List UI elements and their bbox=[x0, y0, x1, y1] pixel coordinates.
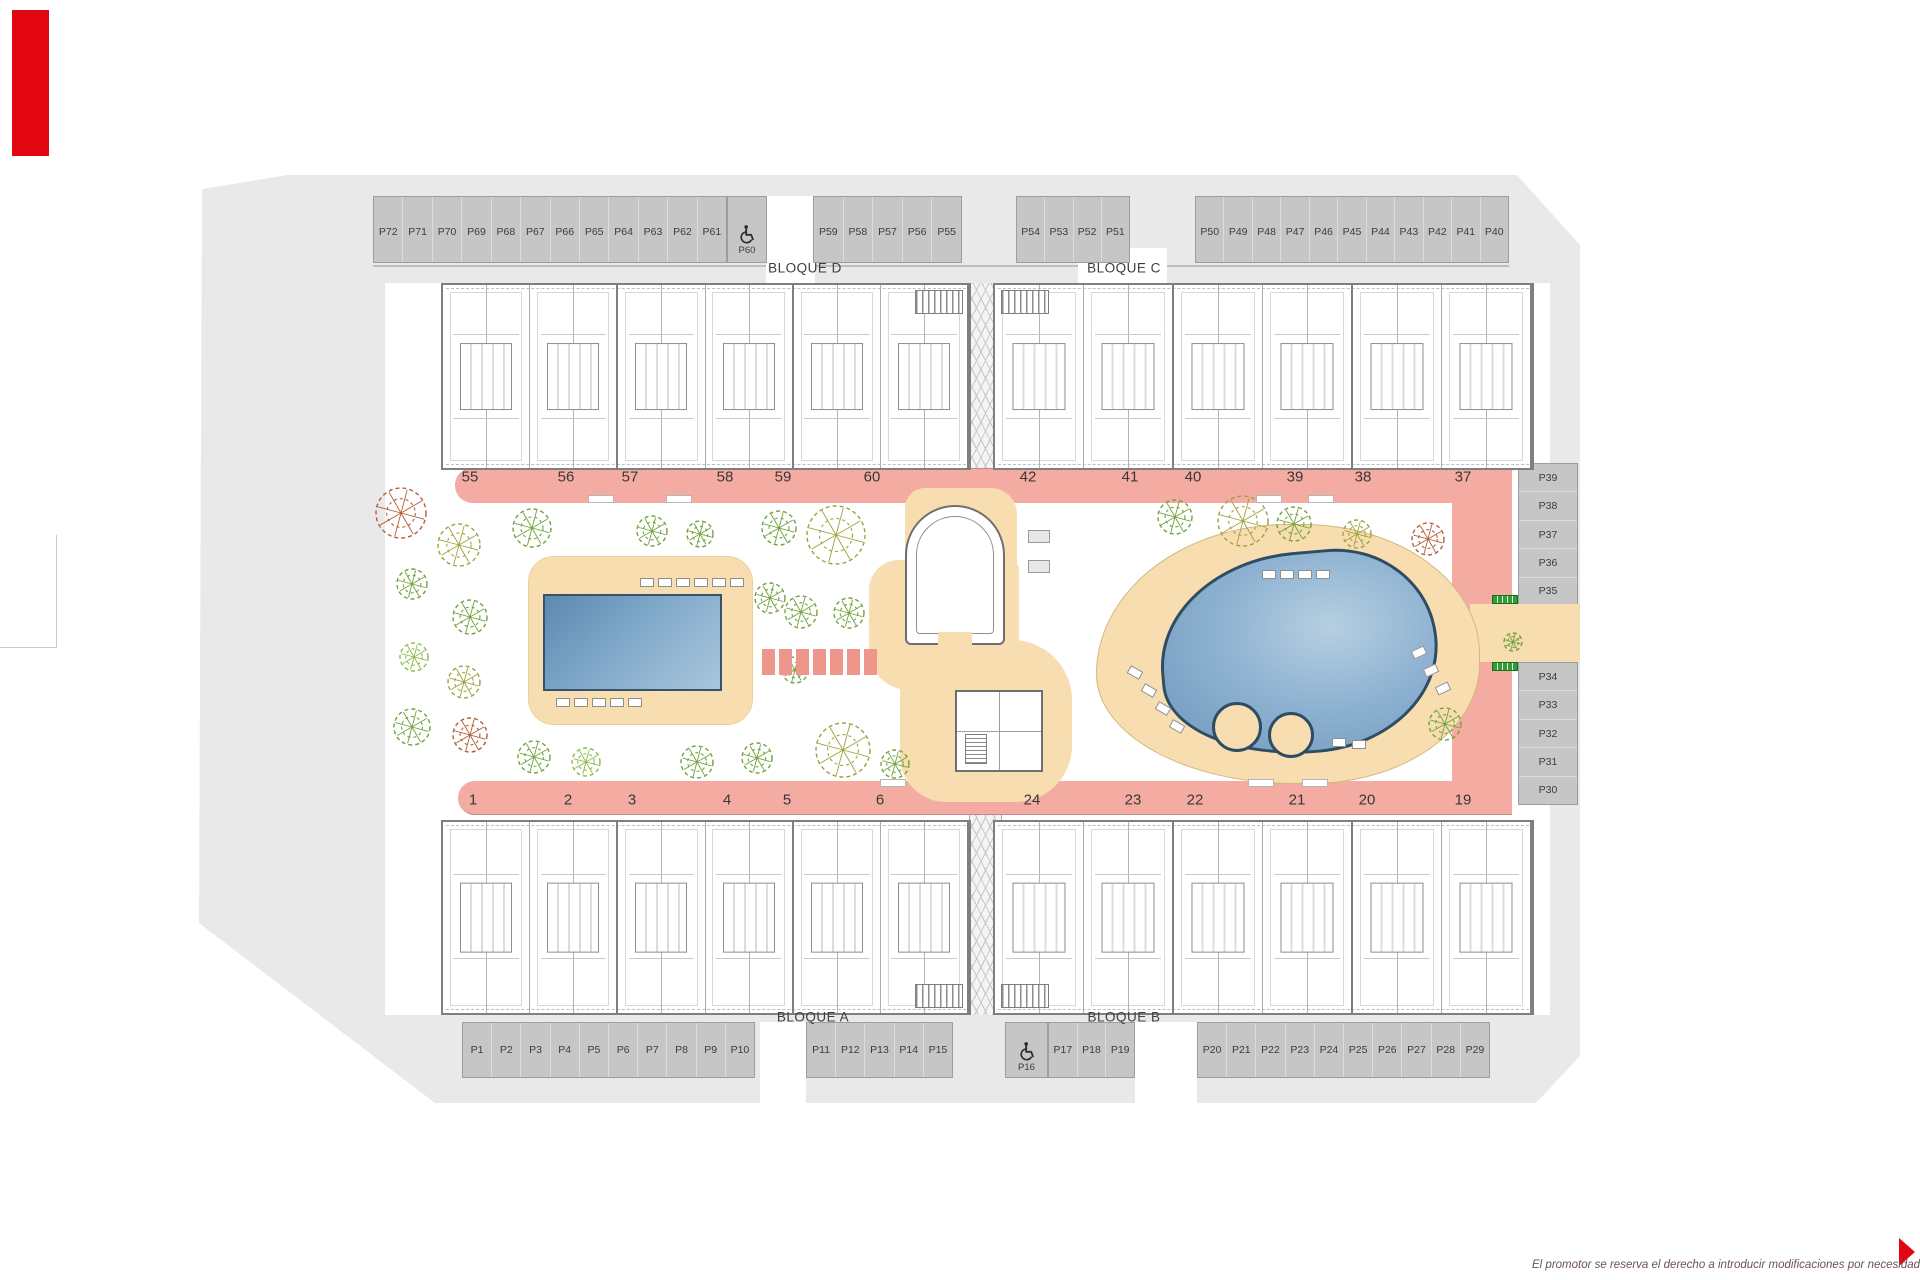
parking-stall-label: P31 bbox=[1539, 756, 1558, 768]
parking-stall: P54 bbox=[1017, 197, 1044, 262]
apartment-unit bbox=[1174, 822, 1263, 1013]
parking-stall: P48 bbox=[1252, 197, 1280, 262]
unit-number-label: 23 bbox=[1125, 792, 1142, 809]
parking-stall: P8 bbox=[666, 1023, 695, 1077]
parking-stall-label: P52 bbox=[1078, 226, 1097, 238]
parking-stall-label: P21 bbox=[1232, 1044, 1251, 1056]
planter-bench bbox=[588, 495, 614, 503]
parking-stall-label: P47 bbox=[1286, 226, 1305, 238]
parking-stall: P27 bbox=[1401, 1023, 1430, 1077]
stepping-stone bbox=[813, 649, 826, 675]
stairs-icon bbox=[1001, 290, 1049, 314]
parking-stall: P62 bbox=[667, 197, 696, 262]
pavilion-building bbox=[955, 690, 1043, 772]
parking-stall: P22 bbox=[1255, 1023, 1284, 1077]
sun-lounger-icon bbox=[1298, 570, 1312, 579]
planter-bench bbox=[1256, 495, 1282, 503]
planter-bench bbox=[880, 779, 906, 787]
parking-stall-label: P55 bbox=[937, 226, 956, 238]
parking-stall-label: P12 bbox=[841, 1044, 860, 1056]
parking-stall-label: P19 bbox=[1111, 1044, 1130, 1056]
unit-number-label: 58 bbox=[717, 469, 734, 486]
parking-stall: P43 bbox=[1394, 197, 1422, 262]
parking-group-bottom-right: P20P21P22P23P24P25P26P27P28P29 bbox=[1197, 1022, 1490, 1078]
parking-stall: P67 bbox=[520, 197, 549, 262]
parking-stall: P69 bbox=[461, 197, 490, 262]
parking-stall-label: P17 bbox=[1053, 1044, 1072, 1056]
parking-stall-label: P11 bbox=[812, 1044, 830, 1056]
parking-stall-label: P46 bbox=[1314, 226, 1333, 238]
parking-group-bottom-left: P1P2P3P4P5P6P7P8P9P10 bbox=[462, 1022, 755, 1078]
parking-stall-label: P1 bbox=[471, 1044, 484, 1056]
parking-stall-accessible: P16 bbox=[1005, 1022, 1048, 1078]
parking-stall-label: P53 bbox=[1050, 226, 1069, 238]
exit-sign bbox=[1492, 662, 1518, 671]
parking-stall-label: P15 bbox=[929, 1044, 948, 1056]
parking-stall-label: P34 bbox=[1539, 671, 1558, 683]
unit-number-label: 5 bbox=[783, 792, 791, 809]
parking-stall-label: P71 bbox=[408, 226, 427, 238]
parking-stall: P71 bbox=[402, 197, 431, 262]
parking-stall-label: P64 bbox=[614, 226, 633, 238]
sun-lounger-icon bbox=[574, 698, 588, 707]
spa-bench bbox=[1028, 560, 1050, 573]
parking-stall: P7 bbox=[637, 1023, 666, 1077]
unit-number-label: 20 bbox=[1359, 792, 1376, 809]
parking-stall-label: P13 bbox=[870, 1044, 889, 1056]
parking-stall-label: P60 bbox=[739, 245, 756, 256]
curb-line bbox=[373, 265, 1509, 267]
parking-stall-label: P24 bbox=[1320, 1044, 1339, 1056]
parking-stall: P11 bbox=[807, 1023, 835, 1077]
parking-stall: P14 bbox=[894, 1023, 923, 1077]
parking-stall: P6 bbox=[608, 1023, 637, 1077]
parking-stall-label: P9 bbox=[704, 1044, 717, 1056]
parking-stall-label: P56 bbox=[908, 226, 927, 238]
parking-stall-label: P51 bbox=[1106, 226, 1125, 238]
parking-stall: P28 bbox=[1431, 1023, 1460, 1077]
parking-group-top-mid-left: P59P58P57P56P55 bbox=[813, 196, 962, 263]
parking-stall-label: P48 bbox=[1257, 226, 1276, 238]
parking-stall: P68 bbox=[491, 197, 520, 262]
parking-stall: P44 bbox=[1366, 197, 1394, 262]
parking-stall-label: P61 bbox=[703, 226, 722, 238]
apartment-unit bbox=[618, 822, 705, 1013]
parking-stall-label: P38 bbox=[1539, 500, 1558, 512]
stepping-stone bbox=[847, 649, 860, 675]
parking-stall-label: P70 bbox=[438, 226, 457, 238]
parking-stall: P32 bbox=[1519, 719, 1577, 747]
stairs-icon bbox=[965, 734, 987, 764]
parking-stall-label: P43 bbox=[1400, 226, 1419, 238]
apartment-unit bbox=[1353, 822, 1442, 1013]
parking-group-top-right: P50P49P48P47P46P45P44P43P42P41P40 bbox=[1195, 196, 1509, 263]
sun-lounger-icon bbox=[694, 578, 708, 587]
parking-stall-label: P2 bbox=[500, 1044, 513, 1056]
unit-number-label: 2 bbox=[564, 792, 572, 809]
parking-stall-label: P4 bbox=[558, 1044, 571, 1056]
parking-stall-label: P10 bbox=[731, 1044, 750, 1056]
clubhouse-building bbox=[905, 505, 1005, 645]
parking-stall-label: P16 bbox=[1018, 1062, 1035, 1073]
apartment-unit bbox=[794, 285, 881, 468]
parking-stall: P18 bbox=[1077, 1023, 1106, 1077]
site-plan-page: P72P71P70P69P68P67P66P65P64P63P62P61 P60… bbox=[0, 0, 1920, 1280]
parking-stall-label: P32 bbox=[1539, 728, 1558, 740]
parking-stall: P38 bbox=[1519, 491, 1577, 519]
parking-stall-label: P39 bbox=[1539, 472, 1558, 484]
parking-stall: P24 bbox=[1314, 1023, 1343, 1077]
parking-stall-label: P68 bbox=[497, 226, 516, 238]
building-bloque-d bbox=[441, 283, 971, 470]
unit-number-label: 3 bbox=[628, 792, 636, 809]
block-label-a: BLOQUE A bbox=[777, 1010, 849, 1025]
parking-stall: P29 bbox=[1460, 1023, 1489, 1077]
sun-lounger-icon bbox=[676, 578, 690, 587]
apartment-unit bbox=[1442, 285, 1532, 468]
unit-number-label: 60 bbox=[864, 469, 881, 486]
parking-stall-label: P40 bbox=[1485, 226, 1504, 238]
building-bloque-a bbox=[441, 820, 971, 1015]
parking-stall-label: P41 bbox=[1456, 226, 1475, 238]
stepping-stone bbox=[796, 649, 809, 675]
parking-stall: P34 bbox=[1519, 663, 1577, 690]
parking-stall: P13 bbox=[864, 1023, 893, 1077]
apartment-unit bbox=[794, 822, 881, 1013]
apartment-unit bbox=[1084, 285, 1174, 468]
parking-stall: P58 bbox=[843, 197, 873, 262]
parking-stall-label: P59 bbox=[819, 226, 838, 238]
unit-number-label: 55 bbox=[462, 469, 479, 486]
apartment-unit bbox=[706, 822, 794, 1013]
parking-group-right-lower: P34P33P32P31P30 bbox=[1518, 662, 1578, 805]
parking-stall: P65 bbox=[579, 197, 608, 262]
block-label-c: BLOQUE C bbox=[1087, 261, 1161, 276]
parking-stall-label: P6 bbox=[617, 1044, 630, 1056]
parking-stall: P1 bbox=[463, 1023, 491, 1077]
parking-stall: P5 bbox=[579, 1023, 608, 1077]
parking-stall: P21 bbox=[1226, 1023, 1255, 1077]
apartment-unit bbox=[1263, 822, 1353, 1013]
parking-stall: P10 bbox=[725, 1023, 754, 1077]
building-bloque-b bbox=[993, 820, 1534, 1015]
parking-stall: P41 bbox=[1451, 197, 1479, 262]
stepping-stone bbox=[864, 649, 877, 675]
sun-lounger-icon bbox=[628, 698, 642, 707]
parking-stall: P42 bbox=[1423, 197, 1451, 262]
unit-number-label: 42 bbox=[1020, 469, 1037, 486]
parking-stall-label: P62 bbox=[673, 226, 692, 238]
parking-group-bottom-mid2: P17P18P19 bbox=[1048, 1022, 1135, 1078]
parking-stall: P59 bbox=[814, 197, 843, 262]
parking-stall: P47 bbox=[1280, 197, 1308, 262]
parking-stall: P66 bbox=[550, 197, 579, 262]
parking-stall: P61 bbox=[697, 197, 726, 262]
lagoon-cove bbox=[1268, 712, 1314, 758]
parking-stall-label: P65 bbox=[585, 226, 604, 238]
parking-group-bottom-mid: P11P12P13P14P15 bbox=[806, 1022, 953, 1078]
parking-stall-label: P26 bbox=[1378, 1044, 1397, 1056]
unit-number-label: 38 bbox=[1355, 469, 1372, 486]
entrance-notch bbox=[1135, 1022, 1197, 1103]
parking-stall: P33 bbox=[1519, 690, 1577, 718]
unit-number-label: 22 bbox=[1187, 792, 1204, 809]
building-bloque-c bbox=[993, 283, 1534, 470]
parking-stall: P37 bbox=[1519, 520, 1577, 548]
sun-lounger-icon bbox=[1352, 740, 1366, 749]
parking-stall-label: P54 bbox=[1021, 226, 1040, 238]
apartment-unit bbox=[1442, 822, 1532, 1013]
parking-stall-label: P45 bbox=[1343, 226, 1362, 238]
unit-number-label: 24 bbox=[1024, 792, 1041, 809]
neighbor-plot-line bbox=[56, 535, 57, 648]
parking-stall-label: P3 bbox=[529, 1044, 542, 1056]
unit-number-label: 39 bbox=[1287, 469, 1304, 486]
parking-stall: P70 bbox=[432, 197, 461, 262]
parking-stall-label: P25 bbox=[1349, 1044, 1368, 1056]
parking-stall: P64 bbox=[608, 197, 637, 262]
parking-stall-label: P5 bbox=[587, 1044, 600, 1056]
parking-stall: P20 bbox=[1198, 1023, 1226, 1077]
sun-lounger-icon bbox=[1316, 570, 1330, 579]
parking-stall-label: P29 bbox=[1466, 1044, 1485, 1056]
parking-stall-label: P66 bbox=[555, 226, 574, 238]
sun-lounger-icon bbox=[658, 578, 672, 587]
wheelchair-icon bbox=[1017, 1041, 1037, 1061]
parking-stall: P2 bbox=[491, 1023, 520, 1077]
apartment-unit bbox=[1084, 822, 1174, 1013]
apartment-unit bbox=[530, 822, 618, 1013]
parking-stall-label: P7 bbox=[646, 1044, 659, 1056]
disclaimer-text: El promotor se reserva el derecho a intr… bbox=[1532, 1259, 1920, 1271]
parking-stall: P55 bbox=[931, 197, 961, 262]
sun-lounger-icon bbox=[610, 698, 624, 707]
spa-bench bbox=[1028, 530, 1050, 543]
sun-lounger-icon bbox=[730, 578, 744, 587]
parking-stall-label: P28 bbox=[1436, 1044, 1455, 1056]
parking-group-top-mid-right: P54P53P52P51 bbox=[1016, 196, 1130, 263]
parking-stall-label: P58 bbox=[849, 226, 868, 238]
parking-stall: P3 bbox=[520, 1023, 549, 1077]
apartment-unit bbox=[530, 285, 618, 468]
parking-stall-label: P27 bbox=[1407, 1044, 1426, 1056]
parking-stall: P46 bbox=[1309, 197, 1337, 262]
parking-stall: P49 bbox=[1223, 197, 1251, 262]
parking-stall: P53 bbox=[1044, 197, 1072, 262]
unit-number-label: 21 bbox=[1289, 792, 1306, 809]
parking-stall: P19 bbox=[1105, 1023, 1134, 1077]
unit-number-label: 19 bbox=[1455, 792, 1472, 809]
parking-stall: P50 bbox=[1196, 197, 1223, 262]
parking-stall-label: P37 bbox=[1539, 529, 1558, 541]
swimming-pool-west bbox=[543, 594, 722, 691]
parking-stall-label: P63 bbox=[644, 226, 663, 238]
apartment-unit bbox=[443, 822, 530, 1013]
unit-number-label: 57 bbox=[622, 469, 639, 486]
parking-stall-label: P50 bbox=[1200, 226, 1219, 238]
parking-stall: P40 bbox=[1480, 197, 1508, 262]
parking-stall: P9 bbox=[696, 1023, 725, 1077]
sun-lounger-icon bbox=[1332, 738, 1346, 747]
parking-stall-label: P20 bbox=[1203, 1044, 1222, 1056]
planter-bench bbox=[1248, 779, 1274, 787]
block-label-d: BLOQUE D bbox=[768, 261, 842, 276]
stepping-stone bbox=[779, 649, 792, 675]
stairs-icon bbox=[1001, 984, 1049, 1008]
entrance-notch bbox=[760, 1022, 806, 1103]
parking-stall: P26 bbox=[1372, 1023, 1401, 1077]
sun-lounger-icon bbox=[592, 698, 606, 707]
neighbor-plot-line bbox=[0, 647, 57, 648]
exit-sign bbox=[1492, 595, 1518, 604]
parking-stall: P56 bbox=[902, 197, 932, 262]
parking-stall: P72 bbox=[374, 197, 402, 262]
parking-stall-label: P8 bbox=[675, 1044, 688, 1056]
parking-stall: P63 bbox=[638, 197, 667, 262]
parking-stall-label: P22 bbox=[1261, 1044, 1280, 1056]
parking-stall-label: P14 bbox=[899, 1044, 918, 1056]
stepping-stone bbox=[830, 649, 843, 675]
parking-stall: P35 bbox=[1519, 577, 1577, 605]
apartment-unit bbox=[706, 285, 794, 468]
unit-number-label: 4 bbox=[723, 792, 731, 809]
unit-number-label: 40 bbox=[1185, 469, 1202, 486]
parking-stall-label: P18 bbox=[1082, 1044, 1101, 1056]
parking-stall: P17 bbox=[1049, 1023, 1077, 1077]
parking-stall-accessible: P60 bbox=[727, 196, 767, 263]
apartment-unit bbox=[1353, 285, 1442, 468]
parking-stall-label: P69 bbox=[467, 226, 486, 238]
parking-stall-label: P23 bbox=[1290, 1044, 1309, 1056]
parking-stall: P30 bbox=[1519, 776, 1577, 804]
parking-stall: P15 bbox=[923, 1023, 952, 1077]
planter-bench bbox=[1302, 779, 1328, 787]
parking-stall: P52 bbox=[1073, 197, 1101, 262]
lagoon-cove bbox=[1212, 702, 1262, 752]
stairs-icon bbox=[915, 290, 963, 314]
planter-bench bbox=[666, 495, 692, 503]
unit-number-label: 56 bbox=[558, 469, 575, 486]
parking-stall-label: P72 bbox=[379, 226, 398, 238]
unit-number-label: 1 bbox=[469, 792, 477, 809]
sun-lounger-icon bbox=[1280, 570, 1294, 579]
parking-stall: P31 bbox=[1519, 747, 1577, 775]
unit-number-label: 41 bbox=[1122, 469, 1139, 486]
parking-stall-label: P57 bbox=[878, 226, 897, 238]
east-entrance-deck bbox=[1470, 604, 1580, 662]
parking-stall: P12 bbox=[835, 1023, 864, 1077]
parking-stall-label: P30 bbox=[1539, 784, 1558, 796]
apartment-unit bbox=[443, 285, 530, 468]
apartment-unit bbox=[1263, 285, 1353, 468]
parking-stall-label: P44 bbox=[1371, 226, 1390, 238]
unit-number-label: 59 bbox=[775, 469, 792, 486]
sun-lounger-icon bbox=[556, 698, 570, 707]
parking-stall-label: P33 bbox=[1539, 699, 1558, 711]
planter-bench bbox=[1308, 495, 1334, 503]
parking-group-right-upper: P39P38P37P36P35 bbox=[1518, 463, 1578, 606]
parking-stall-label: P36 bbox=[1539, 557, 1558, 569]
unit-number-label: 37 bbox=[1455, 469, 1472, 486]
parking-stall: P25 bbox=[1343, 1023, 1372, 1077]
parking-stall-label: P67 bbox=[526, 226, 545, 238]
sun-lounger-icon bbox=[640, 578, 654, 587]
block-label-b: BLOQUE B bbox=[1087, 1010, 1160, 1025]
stepping-stone bbox=[762, 649, 775, 675]
parking-group-top-left: P72P71P70P69P68P67P66P65P64P63P62P61 bbox=[373, 196, 727, 263]
parking-stall-label: P42 bbox=[1428, 226, 1447, 238]
wheelchair-icon bbox=[737, 224, 757, 244]
parking-stall: P51 bbox=[1101, 197, 1129, 262]
parking-stall: P4 bbox=[550, 1023, 579, 1077]
parking-stall: P36 bbox=[1519, 548, 1577, 576]
apartment-unit bbox=[618, 285, 705, 468]
page-accent-red-bar bbox=[12, 10, 49, 156]
stairs-icon bbox=[915, 984, 963, 1008]
sun-lounger-icon bbox=[712, 578, 726, 587]
unit-number-label: 6 bbox=[876, 792, 884, 809]
parking-stall: P57 bbox=[872, 197, 902, 262]
parking-stall-label: P49 bbox=[1229, 226, 1248, 238]
sun-lounger-icon bbox=[1262, 570, 1276, 579]
parking-stall: P45 bbox=[1337, 197, 1365, 262]
apartment-unit bbox=[1174, 285, 1263, 468]
parking-stall-label: P35 bbox=[1539, 585, 1558, 597]
parking-stall: P23 bbox=[1285, 1023, 1314, 1077]
